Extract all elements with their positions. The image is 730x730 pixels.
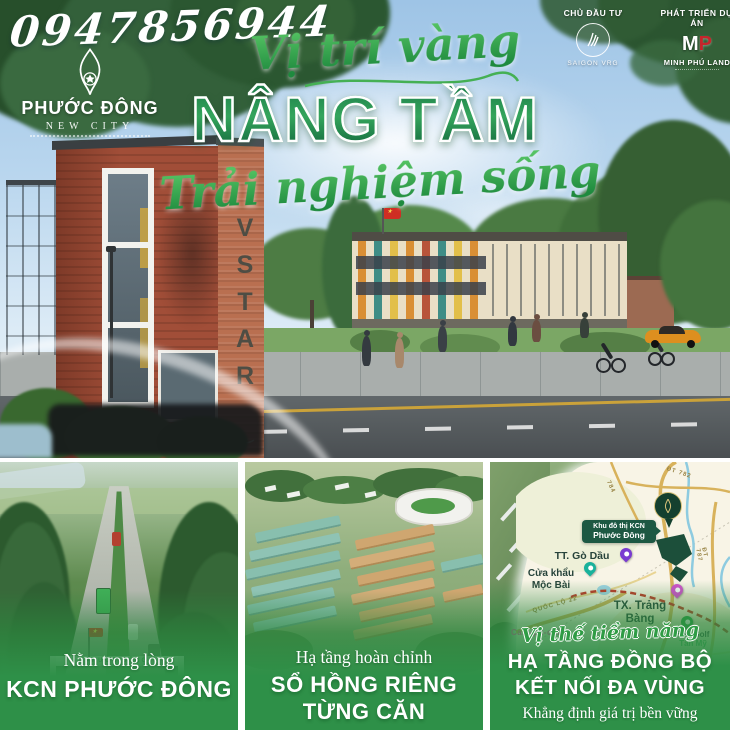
vietnam-flag-icon [384, 208, 401, 219]
poster: VSTAR [0, 0, 730, 730]
panel-kcn-phuoc-dong: PHƯỚC ĐÔNG Nằm trong lòng KCN PHƯỚC ĐÔNG [0, 462, 238, 730]
pedestrian [438, 326, 447, 352]
panel-kicker: Hạ tầng hoàn chỉnh [245, 647, 483, 668]
pedestrian [508, 322, 517, 346]
panel-title: KCN PHƯỚC ĐÔNG [0, 676, 238, 703]
pedestrian [395, 338, 404, 368]
panel-title: HẠ TẦNG ĐỒNG BỘ [490, 650, 730, 674]
panel-title: KẾT NỐI ĐA VÙNG [490, 676, 730, 700]
developer-name: MINH PHÚ LAND [654, 58, 730, 67]
sports-car [645, 326, 701, 346]
pedestrian [580, 318, 589, 338]
panel-so-hong: Hạ tầng hoàn chỉnh SỔ HỒNG RIÊNG TỪNG CĂ… [245, 462, 483, 730]
cyclist [596, 342, 626, 372]
panel-tagline: Khẳng định giá trị bền vững [490, 705, 730, 723]
developer-tagline-rule [675, 69, 719, 70]
panel-title: TỪNG CĂN [245, 699, 483, 725]
panel-title: SỔ HỒNG RIÊNG [245, 672, 483, 698]
pedestrian [532, 320, 541, 342]
pedestrian [362, 336, 371, 366]
panel-map: Khu đô thị KCN Phước Đông TT. Gò Dầu Cửa… [490, 462, 730, 730]
panel-kicker: Nằm trong lòng [0, 650, 238, 671]
